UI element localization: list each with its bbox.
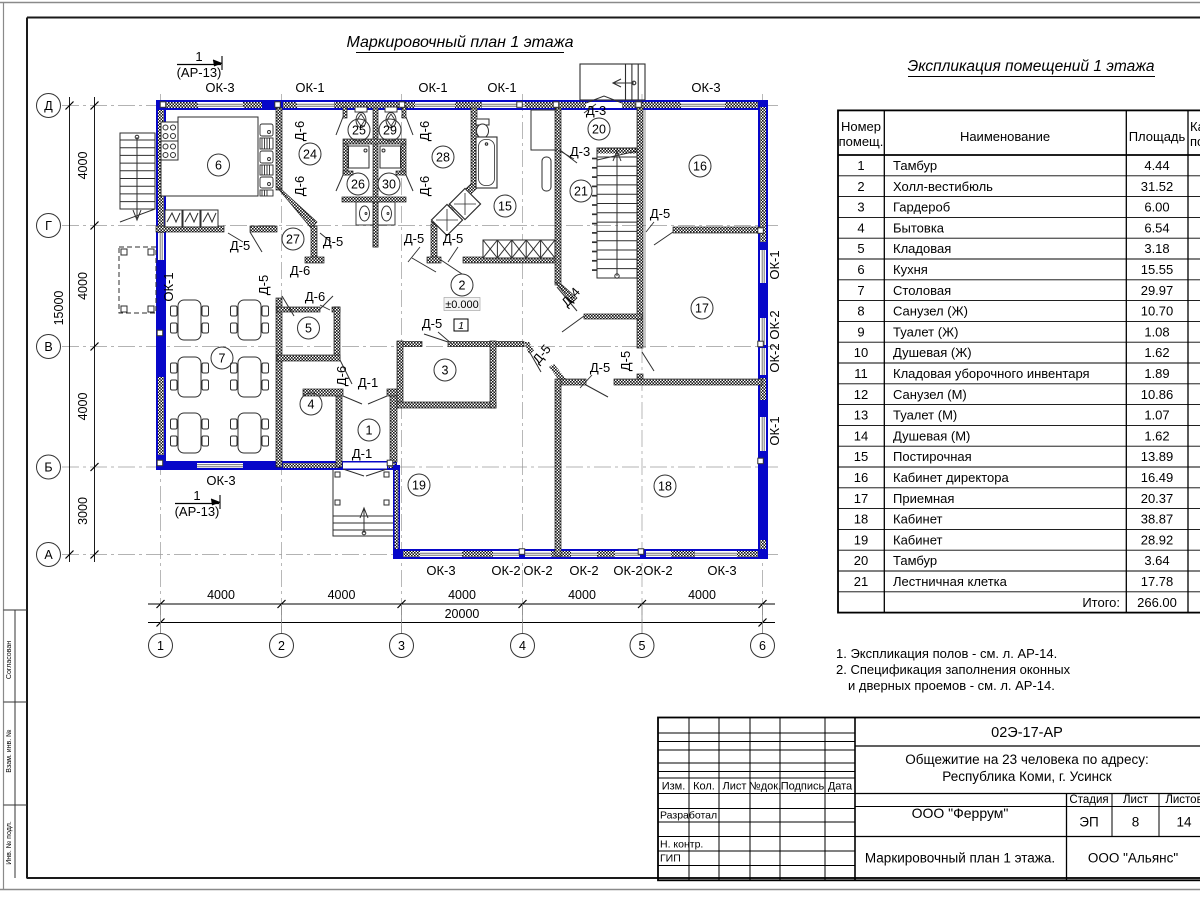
svg-text:Д-5: Д-5 — [443, 231, 463, 246]
svg-text:Б: Б — [44, 460, 52, 474]
svg-text:Разработал: Разработал — [660, 810, 717, 822]
svg-text:Д-6: Д-6 — [334, 366, 349, 386]
svg-text:4: 4 — [857, 220, 864, 235]
svg-text:Номер: Номер — [841, 119, 881, 134]
svg-text:1: 1 — [857, 158, 864, 173]
svg-text:10: 10 — [854, 345, 868, 360]
svg-text:Бытовка: Бытовка — [893, 220, 945, 235]
svg-text:Экспликация помещений 1 этажа: Экспликация помещений 1 этажа — [907, 58, 1154, 75]
svg-text:17: 17 — [695, 301, 709, 315]
svg-text:Взам. инв. №: Взам. инв. № — [6, 729, 13, 772]
svg-text:Тамбур: Тамбур — [893, 553, 937, 568]
svg-text:Лист: Лист — [723, 781, 747, 793]
svg-text:3: 3 — [442, 363, 449, 377]
svg-text:Кладовая: Кладовая — [893, 241, 951, 256]
svg-text:Д-5: Д-5 — [256, 275, 271, 295]
svg-text:2. Спецификация заполнения око: 2. Спецификация заполнения оконных — [836, 662, 1071, 677]
svg-text:10.70: 10.70 — [1141, 304, 1174, 319]
svg-text:2: 2 — [278, 639, 285, 653]
svg-text:28.92: 28.92 — [1141, 532, 1174, 547]
svg-text:Д-5: Д-5 — [650, 206, 670, 221]
svg-text:ОК-2: ОК-2 — [613, 563, 642, 578]
svg-text:Санузел (М): Санузел (М) — [893, 387, 967, 402]
svg-text:3.18: 3.18 — [1144, 241, 1169, 256]
svg-text:30: 30 — [382, 177, 396, 191]
svg-text:27: 27 — [286, 232, 300, 246]
svg-text:Туалет (М): Туалет (М) — [893, 408, 957, 423]
svg-text:и дверных проемов - см. л. АР-: и дверных проемов - см. л. АР-14. — [848, 678, 1055, 693]
svg-text:ОК-2: ОК-2 — [767, 343, 782, 372]
svg-text:21: 21 — [574, 184, 588, 198]
svg-text:6.00: 6.00 — [1144, 200, 1169, 215]
svg-text:6: 6 — [759, 639, 766, 653]
svg-text:Листов: Листов — [1165, 794, 1200, 806]
svg-text:4000: 4000 — [448, 588, 476, 602]
svg-text:15: 15 — [854, 449, 868, 464]
svg-text:31.52: 31.52 — [1141, 179, 1174, 194]
svg-text:4000: 4000 — [76, 152, 90, 180]
svg-text:ООО "Альянс": ООО "Альянс" — [1088, 851, 1178, 866]
svg-text:3: 3 — [857, 200, 864, 215]
svg-text:Маркировочный план 1 этажа.: Маркировочный план 1 этажа. — [865, 851, 1055, 866]
svg-text:Кухня: Кухня — [893, 262, 928, 277]
svg-text:19: 19 — [412, 478, 426, 492]
svg-text:Наименование: Наименование — [960, 129, 1050, 144]
svg-text:1: 1 — [195, 49, 202, 64]
svg-text:38.87: 38.87 — [1141, 512, 1174, 527]
svg-text:1. Экспликация полов - см. л.: 1. Экспликация полов - см. л. АР-14. — [836, 646, 1057, 661]
svg-text:5: 5 — [857, 241, 864, 256]
svg-text:28: 28 — [436, 150, 450, 164]
svg-text:6.54: 6.54 — [1144, 220, 1169, 235]
svg-text:17.78: 17.78 — [1141, 574, 1174, 589]
svg-text:1.62: 1.62 — [1144, 345, 1169, 360]
svg-text:ОК-2: ОК-2 — [767, 310, 782, 339]
svg-text:1: 1 — [193, 488, 200, 503]
svg-text:Республика Коми, г. Усинск: Республика Коми, г. Усинск — [942, 769, 1112, 784]
svg-text:ОК-1: ОК-1 — [767, 250, 782, 279]
svg-text:ОК-3: ОК-3 — [205, 80, 234, 95]
svg-text:Кол.: Кол. — [693, 781, 715, 793]
svg-text:26: 26 — [351, 177, 365, 191]
svg-text:Изм.: Изм. — [662, 781, 686, 793]
svg-text:4000: 4000 — [568, 588, 596, 602]
svg-text:ОК-1: ОК-1 — [767, 416, 782, 445]
svg-text:13: 13 — [854, 408, 868, 423]
svg-text:Д-5: Д-5 — [323, 234, 343, 249]
svg-text:Д: Д — [44, 99, 53, 113]
svg-text:Подпись: Подпись — [781, 781, 825, 793]
svg-text:Лист: Лист — [1123, 794, 1149, 806]
svg-text:Д-3: Д-3 — [570, 144, 590, 159]
svg-text:16: 16 — [854, 470, 868, 485]
svg-text:Д-6: Д-6 — [290, 263, 310, 278]
svg-text:15000: 15000 — [52, 291, 66, 326]
svg-text:Дата: Дата — [828, 781, 853, 793]
svg-text:Столовая: Столовая — [893, 283, 951, 298]
svg-text:2: 2 — [857, 179, 864, 194]
svg-text:Д-6: Д-6 — [292, 121, 307, 141]
svg-text:ОК-3: ОК-3 — [206, 473, 235, 488]
svg-text:Стадия: Стадия — [1069, 794, 1108, 806]
svg-text:6: 6 — [215, 158, 222, 172]
svg-text:±0.000: ±0.000 — [445, 299, 479, 311]
svg-text:5: 5 — [639, 639, 646, 653]
svg-text:29.97: 29.97 — [1141, 283, 1174, 298]
svg-text:Кладовая уборочного инвентаря: Кладовая уборочного инвентаря — [893, 366, 1090, 381]
svg-text:7: 7 — [857, 283, 864, 298]
svg-text:ГИП: ГИП — [660, 853, 681, 865]
svg-text:1: 1 — [366, 423, 373, 437]
svg-text:24: 24 — [303, 147, 317, 161]
svg-text:Холл-вестибюль: Холл-вестибюль — [893, 179, 993, 194]
svg-text:Туалет (Ж): Туалет (Ж) — [893, 324, 958, 339]
svg-text:Д-6: Д-6 — [417, 176, 432, 196]
svg-text:Д-6: Д-6 — [292, 176, 307, 196]
svg-text:Кабинет: Кабинет — [893, 532, 942, 547]
svg-text:Постирочная: Постирочная — [893, 449, 972, 464]
svg-text:Площадь: Площадь — [1129, 129, 1186, 144]
svg-text:ОК-1: ОК-1 — [487, 80, 516, 95]
svg-text:Д-1: Д-1 — [352, 446, 372, 461]
svg-text:18: 18 — [854, 512, 868, 527]
svg-text:Д-3: Д-3 — [586, 103, 606, 118]
svg-text:4000: 4000 — [207, 588, 235, 602]
svg-text:18: 18 — [658, 479, 672, 493]
svg-text:Д-5: Д-5 — [590, 360, 610, 375]
svg-text:14: 14 — [854, 428, 868, 443]
svg-text:5: 5 — [305, 321, 312, 335]
svg-text:ОК-3: ОК-3 — [691, 80, 720, 95]
svg-text:Лестничная клетка: Лестничная клетка — [893, 574, 1008, 589]
svg-text:по: по — [1190, 134, 1200, 149]
svg-text:9: 9 — [857, 324, 864, 339]
svg-text:6: 6 — [857, 262, 864, 277]
svg-text:4000: 4000 — [688, 588, 716, 602]
svg-text:1.07: 1.07 — [1144, 408, 1169, 423]
svg-text:1.08: 1.08 — [1144, 324, 1169, 339]
svg-text:Д-5: Д-5 — [422, 316, 442, 331]
svg-text:ОК-1: ОК-1 — [418, 80, 447, 95]
svg-text:11: 11 — [854, 366, 868, 381]
svg-text:А: А — [44, 548, 53, 562]
svg-text:29: 29 — [383, 123, 397, 137]
svg-text:3000: 3000 — [76, 497, 90, 525]
svg-text:Итого:: Итого: — [1082, 595, 1120, 610]
svg-text:помещ.: помещ. — [839, 134, 884, 149]
svg-text:Д-6: Д-6 — [417, 121, 432, 141]
svg-text:Душевая (Ж): Душевая (Ж) — [893, 345, 972, 360]
svg-text:4000: 4000 — [328, 588, 356, 602]
svg-text:Н. контр.: Н. контр. — [660, 839, 703, 851]
svg-text:266.00: 266.00 — [1137, 595, 1177, 610]
svg-text:7: 7 — [219, 351, 226, 365]
svg-text:Общежитие на 23 человека по ад: Общежитие на 23 человека по адресу: — [905, 752, 1148, 767]
svg-text:1.89: 1.89 — [1144, 366, 1169, 381]
svg-text:16.49: 16.49 — [1141, 470, 1174, 485]
svg-text:4.44: 4.44 — [1144, 158, 1169, 173]
svg-text:Санузел (Ж): Санузел (Ж) — [893, 304, 968, 319]
svg-text:ОК-1: ОК-1 — [295, 80, 324, 95]
svg-text:ЭП: ЭП — [1079, 815, 1098, 830]
svg-text:15: 15 — [498, 199, 512, 213]
svg-text:ОК-2: ОК-2 — [643, 563, 672, 578]
svg-text:12: 12 — [854, 387, 868, 402]
svg-text:В: В — [44, 340, 52, 354]
svg-text:Ка: Ка — [1190, 119, 1200, 134]
svg-text:ООО "Феррум": ООО "Феррум" — [912, 805, 1009, 821]
svg-text:Кабинет: Кабинет — [893, 512, 942, 527]
svg-text:8: 8 — [1132, 815, 1140, 830]
svg-text:20.37: 20.37 — [1141, 491, 1174, 506]
svg-text:(АР-13): (АР-13) — [175, 504, 220, 519]
svg-text:25: 25 — [352, 123, 366, 137]
svg-text:3.64: 3.64 — [1144, 553, 1169, 568]
svg-text:Душевая (М): Душевая (М) — [893, 428, 970, 443]
svg-text:Тамбур: Тамбур — [893, 158, 937, 173]
svg-text:Инв. № подл.: Инв. № подл. — [6, 821, 13, 865]
svg-text:4: 4 — [308, 397, 315, 411]
svg-text:4000: 4000 — [76, 393, 90, 421]
svg-text:Кабинет директора: Кабинет директора — [893, 470, 1009, 485]
svg-text:Д-1: Д-1 — [358, 375, 378, 390]
svg-text:Д-5: Д-5 — [618, 351, 633, 371]
svg-text:1.62: 1.62 — [1144, 428, 1169, 443]
svg-text:1: 1 — [157, 639, 164, 653]
svg-text:4: 4 — [519, 639, 526, 653]
svg-text:1: 1 — [458, 320, 464, 332]
svg-text:ОК-2: ОК-2 — [491, 563, 520, 578]
svg-text:15.55: 15.55 — [1141, 262, 1174, 277]
svg-text:Д-5: Д-5 — [404, 231, 424, 246]
svg-text:14: 14 — [1176, 815, 1192, 830]
svg-text:8: 8 — [857, 304, 864, 319]
svg-text:10.86: 10.86 — [1141, 387, 1174, 402]
svg-text:Приемная: Приемная — [893, 491, 954, 506]
svg-text:Гардероб: Гардероб — [893, 200, 950, 215]
svg-text:ОК-2: ОК-2 — [569, 563, 598, 578]
svg-text:Маркировочный план 1 этажа: Маркировочный план 1 этажа — [346, 34, 573, 51]
svg-text:21: 21 — [854, 574, 868, 589]
svg-text:20000: 20000 — [445, 607, 480, 621]
svg-text:4000: 4000 — [76, 272, 90, 300]
svg-text:20: 20 — [592, 122, 606, 136]
svg-text:№док.: №док. — [749, 781, 781, 793]
svg-text:ОК-2: ОК-2 — [523, 563, 552, 578]
svg-text:(АР-13): (АР-13) — [177, 65, 222, 80]
svg-text:02Э-17-АР: 02Э-17-АР — [991, 725, 1063, 741]
svg-text:19: 19 — [854, 532, 868, 547]
svg-text:Согласован: Согласован — [6, 641, 13, 679]
svg-text:3: 3 — [398, 639, 405, 653]
svg-text:Г: Г — [45, 219, 52, 233]
svg-text:17: 17 — [854, 491, 868, 506]
svg-text:16: 16 — [693, 159, 707, 173]
svg-text:ОК-3: ОК-3 — [707, 563, 736, 578]
svg-text:ОК-1: ОК-1 — [161, 272, 176, 301]
svg-text:Д-6: Д-6 — [305, 289, 325, 304]
svg-text:ОК-3: ОК-3 — [426, 563, 455, 578]
svg-text:20: 20 — [854, 553, 868, 568]
svg-text:2: 2 — [459, 278, 466, 292]
svg-text:13.89: 13.89 — [1141, 449, 1174, 464]
